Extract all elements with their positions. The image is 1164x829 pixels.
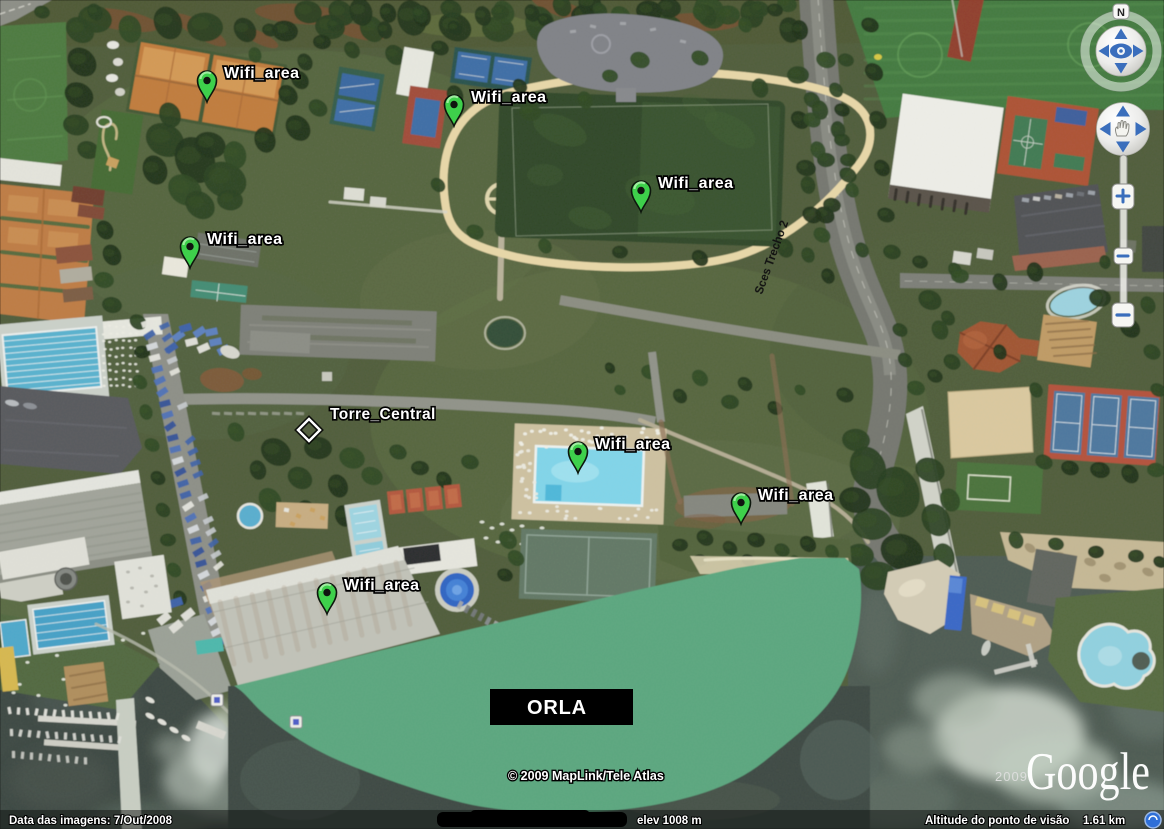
- svg-text:© 2009 MapLink/Tele Atlas: © 2009 MapLink/Tele Atlas: [508, 769, 664, 783]
- svg-text:2009: 2009: [995, 769, 1028, 784]
- svg-text:Wifi_area: Wifi_area: [224, 65, 300, 82]
- svg-text:1.61 km: 1.61 km: [1083, 815, 1125, 827]
- svg-text:Wifi_area: Wifi_area: [344, 577, 420, 594]
- svg-text:Data das imagens: 7/Out/2008: Data das imagens: 7/Out/2008: [9, 815, 173, 827]
- svg-text:Torre_Central: Torre_Central: [330, 406, 436, 423]
- svg-text:elev 1008 m: elev 1008 m: [637, 815, 702, 827]
- svg-text:Wifi_area: Wifi_area: [595, 436, 671, 453]
- svg-text:N: N: [1117, 7, 1125, 19]
- svg-text:ORLA: ORLA: [527, 697, 587, 719]
- svg-text:Wifi_area: Wifi_area: [758, 487, 834, 504]
- svg-text:Google: Google: [1026, 743, 1150, 801]
- svg-text:Altitude do ponto de visão: Altitude do ponto de visão: [925, 815, 1069, 827]
- svg-text:Wifi_area: Wifi_area: [658, 175, 734, 192]
- svg-text:Wifi_area: Wifi_area: [471, 89, 547, 106]
- svg-text:Wifi_area: Wifi_area: [207, 231, 283, 248]
